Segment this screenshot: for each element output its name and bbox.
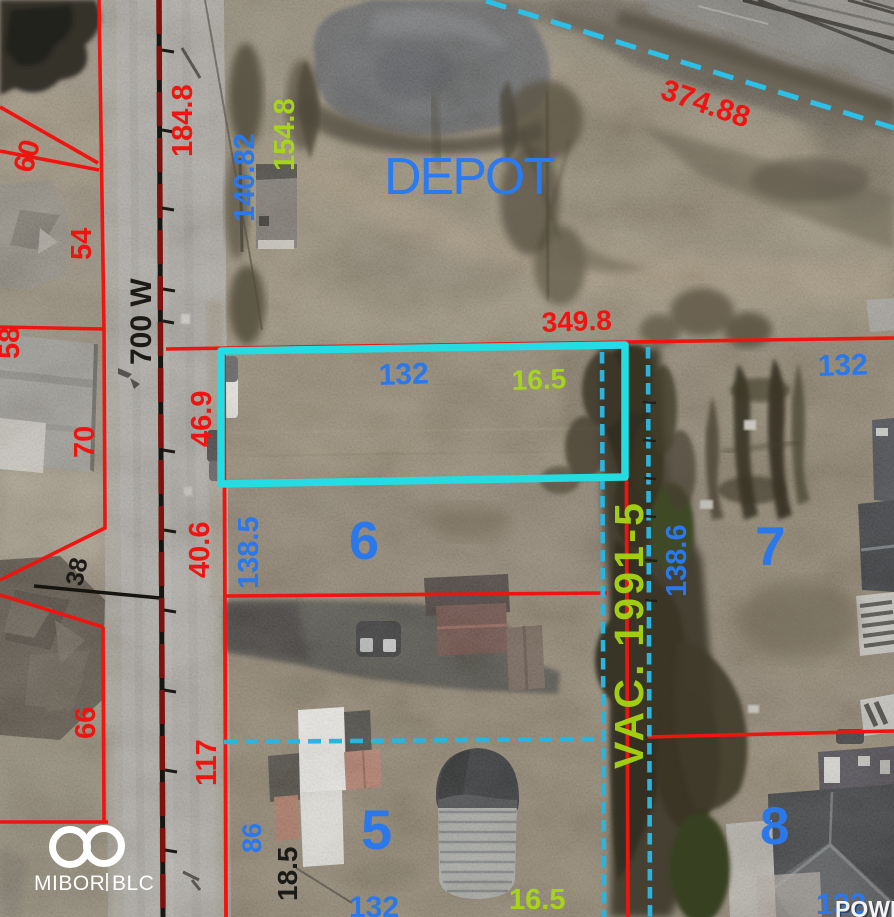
- svg-text:40.6: 40.6: [184, 522, 216, 578]
- svg-text:38: 38: [60, 555, 93, 588]
- svg-text:8: 8: [760, 797, 789, 856]
- svg-text:DEPOT: DEPOT: [384, 148, 554, 206]
- svg-text:700 W: 700 W: [125, 278, 158, 365]
- svg-text:66: 66: [70, 707, 102, 739]
- svg-text:132: 132: [378, 357, 429, 392]
- svg-text:16.5: 16.5: [511, 363, 567, 396]
- svg-text:VAC. 1991-5: VAC. 1991-5: [606, 500, 652, 769]
- svg-text:117: 117: [191, 739, 223, 786]
- svg-text:54: 54: [66, 228, 98, 260]
- svg-text:46.9: 46.9: [186, 391, 218, 447]
- svg-text:184.8: 184.8: [167, 84, 199, 157]
- svg-text:BLC: BLC: [112, 872, 154, 895]
- svg-text:140.82: 140.82: [229, 133, 261, 222]
- svg-text:349.8: 349.8: [541, 305, 612, 338]
- svg-text:58: 58: [0, 327, 26, 359]
- svg-text:86: 86: [237, 823, 267, 853]
- svg-text:18.5: 18.5: [272, 847, 303, 902]
- svg-text:7: 7: [755, 515, 786, 577]
- svg-text:132: 132: [817, 348, 868, 383]
- svg-text:MIBOR: MIBOR: [34, 872, 105, 895]
- svg-text:138.6: 138.6: [661, 524, 693, 597]
- svg-text:POWER: POWER: [835, 896, 894, 917]
- svg-text:5: 5: [361, 798, 392, 861]
- svg-text:16.5: 16.5: [509, 884, 565, 916]
- svg-text:138.5: 138.5: [233, 516, 265, 589]
- svg-text:132: 132: [349, 891, 399, 917]
- svg-text:154.8: 154.8: [269, 98, 301, 171]
- svg-text:6: 6: [349, 511, 379, 571]
- svg-text:70: 70: [69, 426, 101, 458]
